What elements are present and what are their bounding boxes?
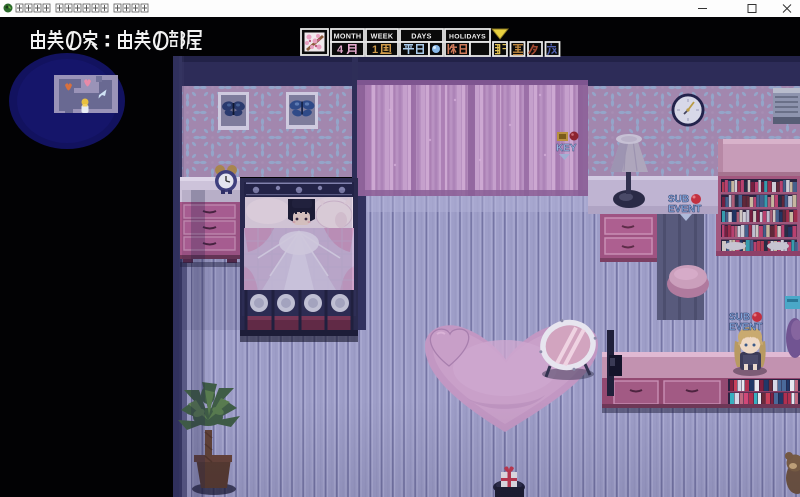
- svg-text:1: 1: [372, 44, 378, 56]
- svg-text:EVENT: EVENT: [668, 204, 701, 215]
- svg-text:4: 4: [337, 44, 344, 56]
- svg-text:DAYS: DAYS: [411, 31, 432, 40]
- svg-text:HOLIDAYS: HOLIDAYS: [449, 33, 486, 40]
- svg-text:KEY: KEY: [556, 143, 577, 154]
- svg-text:WEEK: WEEK: [371, 31, 394, 40]
- svg-text:EVENT: EVENT: [729, 322, 762, 333]
- svg-text:MONTH: MONTH: [334, 31, 362, 40]
